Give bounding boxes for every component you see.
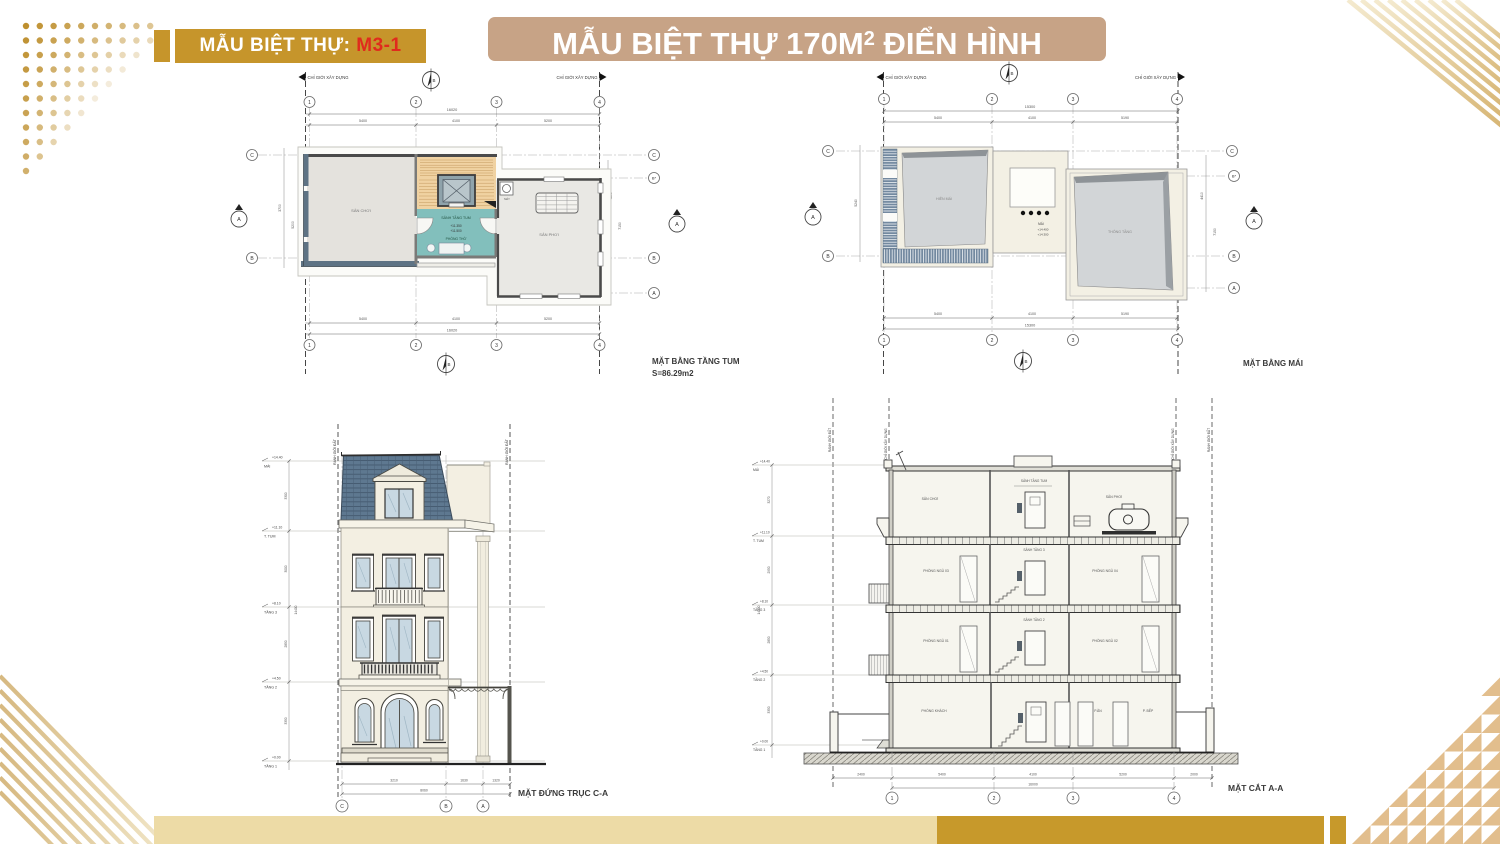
svg-text:2850: 2850 [767,636,771,643]
svg-text:RANH GIỚI ĐẤT: RANH GIỚI ĐẤT [827,428,832,452]
svg-text:T. TUM: T. TUM [753,539,764,543]
svg-text:5200: 5200 [291,221,295,229]
svg-text:3: 3 [1072,97,1075,103]
svg-text:2: 2 [415,343,418,349]
svg-text:4: 4 [1176,338,1179,344]
svg-text:PHÒNG NGỦ 04: PHÒNG NGỦ 04 [1092,568,1118,573]
svg-text:4100: 4100 [1028,116,1036,120]
svg-text:4100: 4100 [452,317,460,321]
svg-text:C: C [1230,149,1234,155]
svg-text:2: 2 [991,97,994,103]
svg-text:2950: 2950 [767,566,771,573]
svg-text:+14.300: +14.300 [1038,233,1049,237]
svg-text:3350: 3350 [284,717,288,724]
svg-text:3270: 3270 [767,496,771,503]
svg-text:4: 4 [1173,796,1176,802]
svg-text:CHỈ GIỚI XÂY DỰNG: CHỈ GIỚI XÂY DỰNG [1135,75,1176,80]
svg-text:B: B [432,78,435,83]
svg-text:MẶT BẰNG TẦNG TUM: MẶT BẰNG TẦNG TUM [652,356,740,366]
svg-text:4: 4 [1176,97,1179,103]
svg-text:RANH GIỚI ĐẤT: RANH GIỚI ĐẤT [332,439,337,465]
svg-text:B: B [1024,359,1027,364]
svg-text:1: 1 [883,97,886,103]
svg-text:PHÒNG NGỦ 01: PHÒNG NGỦ 01 [923,638,949,643]
svg-text:MẶT CẮT A-A: MẶT CẮT A-A [1228,783,1283,793]
svg-text:+11.500: +11.500 [450,229,462,233]
svg-text:MÁY: MÁY [504,197,510,201]
svg-text:4410: 4410 [1200,192,1204,200]
svg-text:1: 1 [308,100,311,106]
svg-text:+11.10: +11.10 [760,531,770,535]
svg-text:SÂN PHƠI: SÂN PHƠI [539,232,558,237]
svg-text:+8.10: +8.10 [760,600,768,604]
svg-text:MÁI: MÁI [1038,222,1044,226]
svg-text:PHÒNG THỜ: PHÒNG THỜ [446,236,467,241]
svg-text:TẦNG 1: TẦNG 1 [264,765,277,769]
svg-text:PHÒNG KHÁCH: PHÒNG KHÁCH [921,708,947,713]
svg-text:B: B [1010,71,1013,76]
svg-text:A: A [675,222,679,228]
svg-text:15300: 15300 [1025,324,1036,328]
svg-text:1320: 1320 [492,779,500,783]
svg-text:3: 3 [1072,796,1075,802]
svg-text:B*: B* [652,175,657,180]
svg-text:5400: 5400 [934,116,942,120]
svg-text:HIÊN MÁI: HIÊN MÁI [936,196,952,201]
svg-text:C: C [652,153,656,159]
svg-text:MẶT ĐỨNG TRỤC C-A: MẶT ĐỨNG TRỤC C-A [518,787,608,798]
svg-text:A: A [237,217,241,223]
svg-text:CHỈ GIỚI XÂY DỰNG: CHỈ GIỚI XÂY DỰNG [1170,428,1175,460]
svg-text:1630: 1630 [460,779,468,783]
svg-text:2: 2 [991,338,994,344]
svg-text:4100: 4100 [1028,312,1036,316]
svg-text:5190: 5190 [1121,116,1129,120]
svg-text:1: 1 [308,343,311,349]
svg-text:SÂN CHƠI: SÂN CHƠI [351,208,371,213]
svg-text:15300: 15300 [1025,105,1036,109]
svg-text:TẦNG 2: TẦNG 2 [264,686,277,690]
svg-text:5400: 5400 [359,119,367,123]
svg-text:5190: 5190 [1121,312,1129,316]
svg-text:SÂN PHƠI: SÂN PHƠI [1106,495,1123,499]
svg-text:5200: 5200 [544,119,552,123]
svg-text:2: 2 [415,100,418,106]
svg-text:TẦNG 3: TẦNG 3 [264,611,277,615]
svg-text:4: 4 [598,100,601,106]
svg-text:+8.10: +8.10 [272,602,281,606]
svg-text:TẦNG 1: TẦNG 1 [753,748,765,752]
svg-text:2000: 2000 [1190,773,1198,777]
svg-text:7150: 7150 [618,222,622,230]
svg-text:C: C [250,153,254,159]
svg-text:SẢNH TẦNG TUM: SẢNH TẦNG TUM [1021,478,1048,483]
svg-text:3000: 3000 [284,565,288,572]
svg-text:MẶT BẰNG MÁI: MẶT BẰNG MÁI [1243,359,1303,368]
svg-text:14400: 14400 [757,605,761,614]
svg-text:THÔNG TẦNG: THÔNG TẦNG [1108,229,1132,234]
svg-text:5240: 5240 [854,199,858,207]
svg-text:14400: 14400 [294,605,298,614]
svg-text:PHÒNG NGỦ 03: PHÒNG NGỦ 03 [923,568,949,573]
svg-text:16020: 16020 [447,108,458,112]
svg-text:PHÒNG NGỦ 02: PHÒNG NGỦ 02 [1092,638,1118,643]
svg-text:CHỈ GIỚI XÂY DỰNG: CHỈ GIỚI XÂY DỰNG [556,75,597,80]
svg-text:5400: 5400 [359,317,367,321]
svg-text:CHỈ GIỚI XÂY DỰNG: CHỈ GIỚI XÂY DỰNG [883,428,888,460]
svg-text:1: 1 [883,338,886,344]
svg-text:5200: 5200 [1119,773,1127,777]
svg-text:SẢNH TẦNG TUM: SẢNH TẦNG TUM [441,215,471,220]
svg-text:MÁI: MÁI [753,468,759,472]
svg-text:C: C [340,804,344,810]
svg-text:4100: 4100 [1029,773,1037,777]
svg-text:5400: 5400 [934,312,942,316]
svg-text:+0.00: +0.00 [272,756,281,760]
svg-text:3210: 3210 [390,779,398,783]
svg-text:2400: 2400 [857,773,865,777]
svg-text:+11.10: +11.10 [272,526,282,530]
svg-text:4: 4 [598,343,601,349]
svg-text:T. TUM: T. TUM [264,535,276,539]
svg-text:RANH GIỚI ĐẤT: RANH GIỚI ĐẤT [504,439,509,465]
svg-text:B*: B* [1232,173,1237,178]
svg-text:3: 3 [495,343,498,349]
svg-text:RANH GIỚI ĐẤT: RANH GIỚI ĐẤT [1206,428,1211,452]
svg-text:+14.40: +14.40 [760,460,770,464]
svg-text:3700: 3700 [278,204,282,212]
svg-text:S=86.29m2: S=86.29m2 [652,369,694,378]
svg-text:+0.00: +0.00 [760,740,768,744]
svg-text:CHỈ GIỚI XÂY DỰNG: CHỈ GIỚI XÂY DỰNG [886,75,927,80]
svg-text:2850: 2850 [284,640,288,647]
svg-text:4100: 4100 [452,119,460,123]
svg-text:SẢNH TẦNG 2: SẢNH TẦNG 2 [1023,617,1044,622]
svg-text:MÁI: MÁI [264,465,270,469]
svg-text:7150: 7150 [1213,228,1217,236]
svg-text:SÂN CHƠI: SÂN CHƠI [922,497,939,501]
svg-text:TẦNG 2: TẦNG 2 [753,678,765,682]
svg-text:1: 1 [891,796,894,802]
svg-text:8060: 8060 [420,789,428,793]
svg-text:2: 2 [993,796,996,802]
svg-text:+4.50: +4.50 [760,670,768,674]
svg-text:16000: 16000 [1028,783,1038,787]
svg-text:+14.400: +14.400 [1038,228,1049,232]
svg-text:3: 3 [495,100,498,106]
svg-text:16020: 16020 [447,329,458,333]
svg-text:5400: 5400 [938,773,946,777]
svg-text:+11.350: +11.350 [450,224,462,228]
svg-text:C: C [826,149,830,155]
svg-text:5200: 5200 [544,317,552,321]
svg-text:3350: 3350 [767,706,771,713]
svg-text:A: A [811,215,815,221]
svg-text:SẢNH TẦNG 3: SẢNH TẦNG 3 [1023,547,1044,552]
svg-text:B: B [447,362,450,367]
svg-text:A: A [1252,219,1256,225]
svg-text:+14.40: +14.40 [272,456,283,460]
svg-text:P.ĂN: P.ĂN [1094,709,1102,713]
svg-text:+4.50: +4.50 [272,677,281,681]
svg-text:P. BẾP: P. BẾP [1143,708,1154,713]
svg-text:3: 3 [1072,338,1075,344]
svg-text:CHỈ GIỚI XÂY DỰNG: CHỈ GIỚI XÂY DỰNG [308,75,349,80]
svg-text:3300: 3300 [284,492,288,499]
